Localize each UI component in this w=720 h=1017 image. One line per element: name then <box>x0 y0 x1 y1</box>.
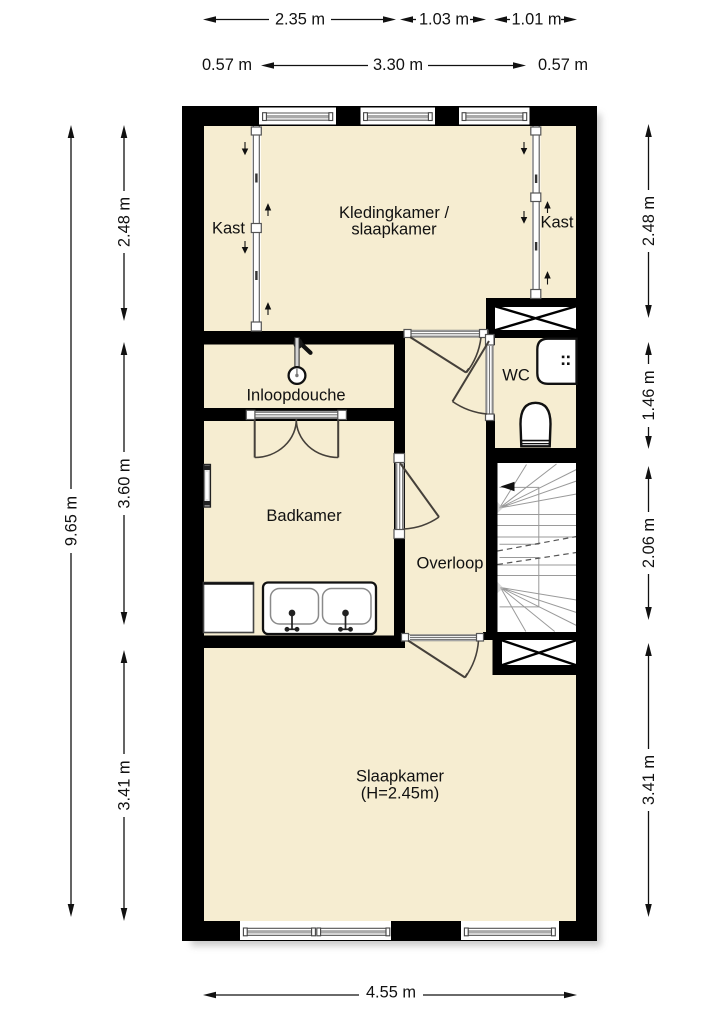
svg-text:slaapkamer: slaapkamer <box>351 221 437 239</box>
svg-text:Kast: Kast <box>212 220 245 238</box>
svg-text:0.57 m: 0.57 m <box>538 56 588 74</box>
svg-text:2.48 m: 2.48 m <box>640 196 658 246</box>
svg-text:Inloopdouche: Inloopdouche <box>246 387 345 405</box>
svg-text:(H=2.45m): (H=2.45m) <box>361 784 439 802</box>
svg-text:9.65 m: 9.65 m <box>63 496 81 546</box>
svg-text:0.57 m: 0.57 m <box>202 56 252 74</box>
svg-text:Overloop: Overloop <box>417 554 484 572</box>
svg-text:WC: WC <box>502 366 530 384</box>
svg-text:1.46 m: 1.46 m <box>640 370 658 420</box>
svg-text:Badkamer: Badkamer <box>266 507 342 525</box>
svg-text:Kledingkamer /: Kledingkamer / <box>339 204 449 222</box>
svg-text:2.35 m: 2.35 m <box>275 11 325 29</box>
svg-text:Kast: Kast <box>540 214 573 232</box>
svg-text:3.60 m: 3.60 m <box>116 458 134 508</box>
svg-text:3.30 m: 3.30 m <box>373 56 423 74</box>
svg-text:2.06 m: 2.06 m <box>640 518 658 568</box>
svg-text:1.01 m: 1.01 m <box>511 11 561 29</box>
svg-text:3.41 m: 3.41 m <box>116 760 134 810</box>
svg-text:2.48 m: 2.48 m <box>116 197 134 247</box>
svg-text:4.55 m: 4.55 m <box>366 984 416 1002</box>
svg-text:Slaapkamer: Slaapkamer <box>356 768 445 786</box>
svg-text:3.41 m: 3.41 m <box>640 755 658 805</box>
svg-text:1.03 m: 1.03 m <box>419 11 469 29</box>
